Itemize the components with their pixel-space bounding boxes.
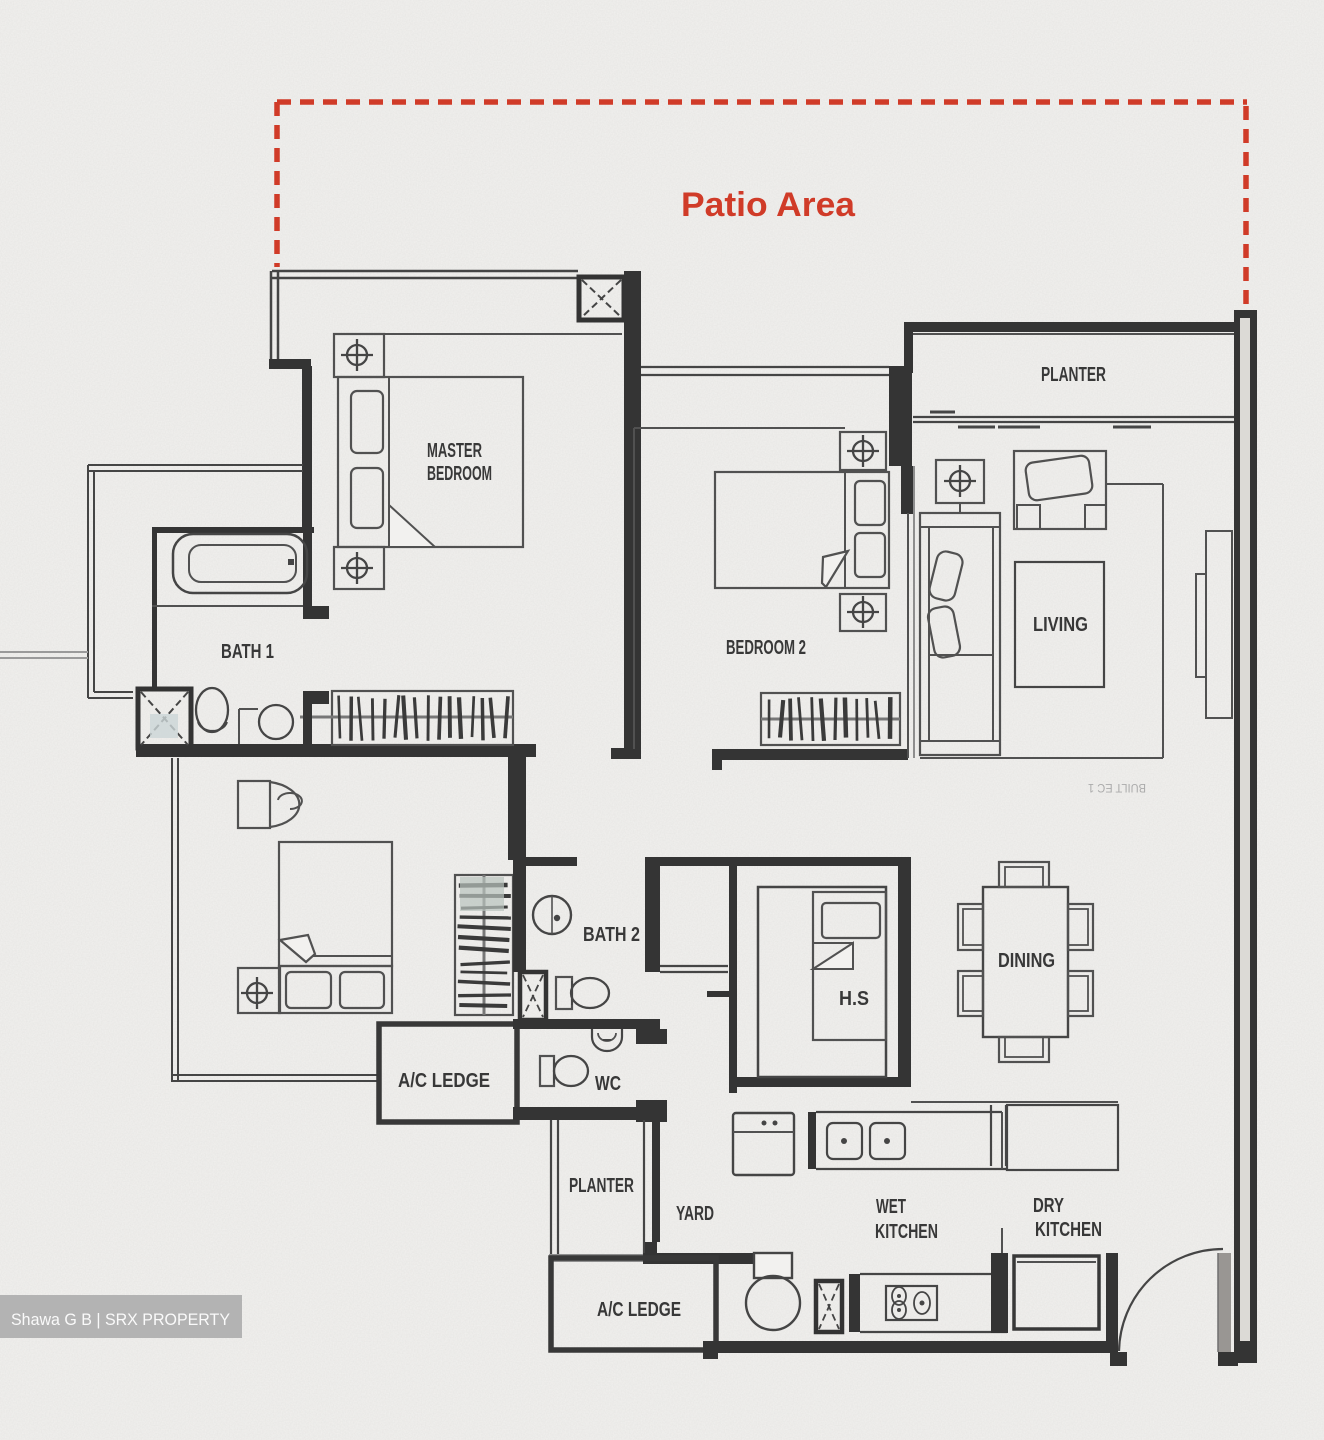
svg-text:MASTER: MASTER	[427, 440, 482, 462]
svg-text:WET: WET	[876, 1196, 906, 1218]
svg-text:H.S: H.S	[839, 988, 869, 1010]
svg-text:DINING: DINING	[998, 950, 1055, 972]
svg-text:PLANTER: PLANTER	[1041, 364, 1106, 386]
svg-text:KITCHEN: KITCHEN	[1035, 1219, 1102, 1241]
svg-text:BATH 2: BATH 2	[583, 924, 640, 946]
svg-text:KITCHEN: KITCHEN	[875, 1221, 938, 1243]
svg-text:YARD: YARD	[676, 1203, 714, 1225]
svg-text:A/C LEDGE: A/C LEDGE	[597, 1299, 681, 1321]
svg-text:A/C LEDGE: A/C LEDGE	[398, 1070, 490, 1092]
svg-text:LIVING: LIVING	[1033, 614, 1088, 636]
svg-text:BEDROOM 2: BEDROOM 2	[726, 637, 806, 659]
svg-text:BATH 1: BATH 1	[221, 641, 274, 663]
svg-text:WC: WC	[595, 1073, 621, 1095]
svg-text:Patio Area: Patio Area	[681, 186, 856, 224]
svg-text:Shawa G B | SRX PROPERTY: Shawa G B | SRX PROPERTY	[11, 1310, 230, 1329]
svg-text:BEDROOM: BEDROOM	[427, 463, 492, 485]
svg-text:BUILT EC 1: BUILT EC 1	[1088, 781, 1146, 795]
svg-text:PLANTER: PLANTER	[569, 1175, 634, 1197]
svg-text:DRY: DRY	[1033, 1195, 1064, 1217]
